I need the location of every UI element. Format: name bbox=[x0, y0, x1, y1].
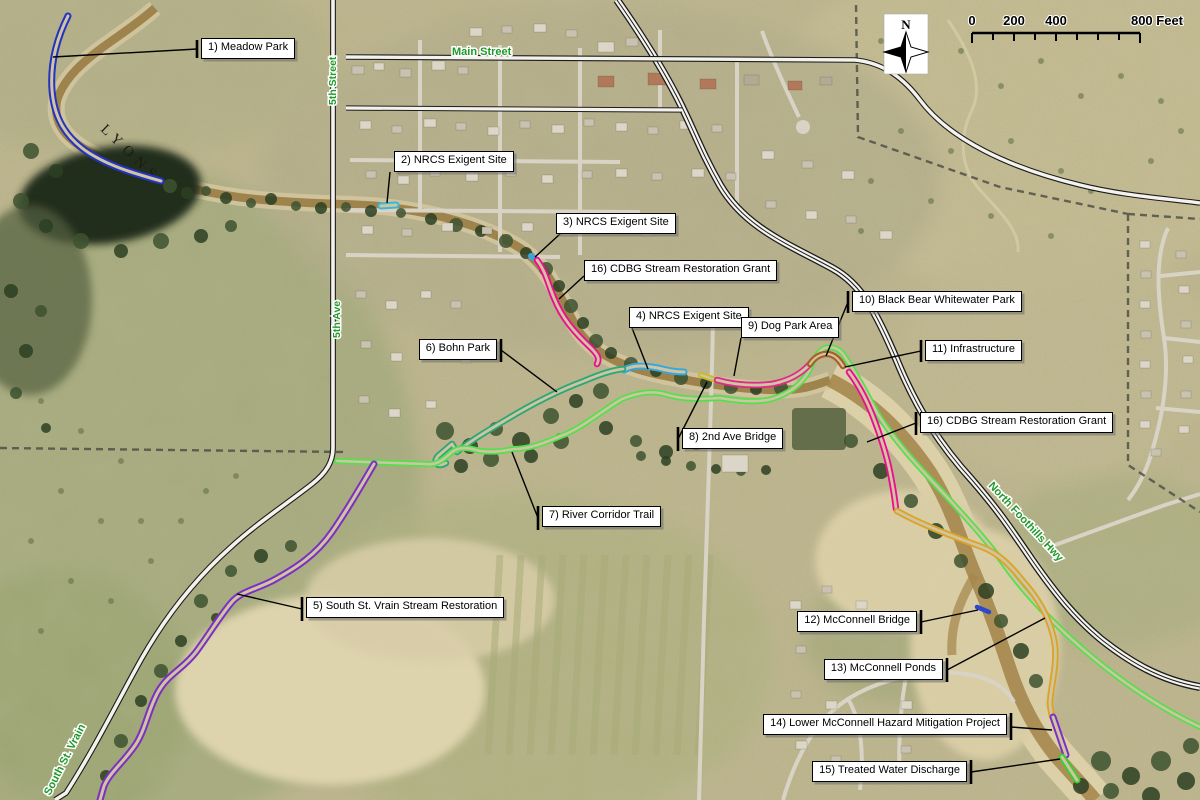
callout-nrcs-exigent-3: 3) NRCS Exigent Site bbox=[556, 213, 676, 234]
callout-meadow-park: 1) Meadow Park bbox=[201, 38, 295, 59]
callout-mcconnell-bridge: 12) McConnell Bridge bbox=[797, 611, 917, 632]
scale-label-800-feet: 800 Feet bbox=[1131, 13, 1184, 28]
callout-bohn-park: 6) Bohn Park bbox=[419, 339, 497, 360]
callout-nrcs-exigent-2: 2) NRCS Exigent Site bbox=[394, 151, 514, 172]
callout-infrastructure: 11) Infrastructure bbox=[925, 340, 1022, 361]
scale-label-400: 400 bbox=[1045, 13, 1067, 28]
street-label-main-street: Main Street bbox=[452, 46, 512, 58]
scale-label-200: 200 bbox=[1003, 13, 1025, 28]
callout-lower-mcconnell: 14) Lower McConnell Hazard Mitigation Pr… bbox=[763, 714, 1007, 735]
aerial-map: Main Street 5th Street 5th Ave North Foo… bbox=[0, 0, 1200, 800]
callout-river-corridor-trail: 7) River Corridor Trail bbox=[542, 506, 661, 527]
callout-dog-park-area: 9) Dog Park Area bbox=[741, 317, 839, 338]
callout-cdbg-grant-west: 16) CDBG Stream Restoration Grant bbox=[584, 260, 777, 281]
callout-cdbg-grant-east: 16) CDBG Stream Restoration Grant bbox=[920, 412, 1113, 433]
north-arrow: N bbox=[884, 14, 928, 74]
callout-second-ave-bridge: 8) 2nd Ave Bridge bbox=[682, 428, 783, 449]
callout-black-bear-whitewater: 10) Black Bear Whitewater Park bbox=[852, 291, 1022, 312]
north-label: N bbox=[901, 17, 911, 32]
street-label-5th-ave: 5th Ave bbox=[331, 301, 343, 338]
scale-label-0: 0 bbox=[968, 13, 975, 28]
callout-south-st-vrain-restoration: 5) South St. Vrain Stream Restoration bbox=[306, 597, 504, 618]
street-label-5th-street: 5th Street bbox=[327, 56, 339, 105]
callout-nrcs-exigent-4: 4) NRCS Exigent Site bbox=[629, 307, 749, 328]
callout-mcconnell-ponds: 13) McConnell Ponds bbox=[824, 659, 943, 680]
callout-treated-water: 15) Treated Water Discharge bbox=[812, 761, 967, 782]
map-canvas: Main Street 5th Street 5th Ave North Foo… bbox=[0, 0, 1200, 800]
